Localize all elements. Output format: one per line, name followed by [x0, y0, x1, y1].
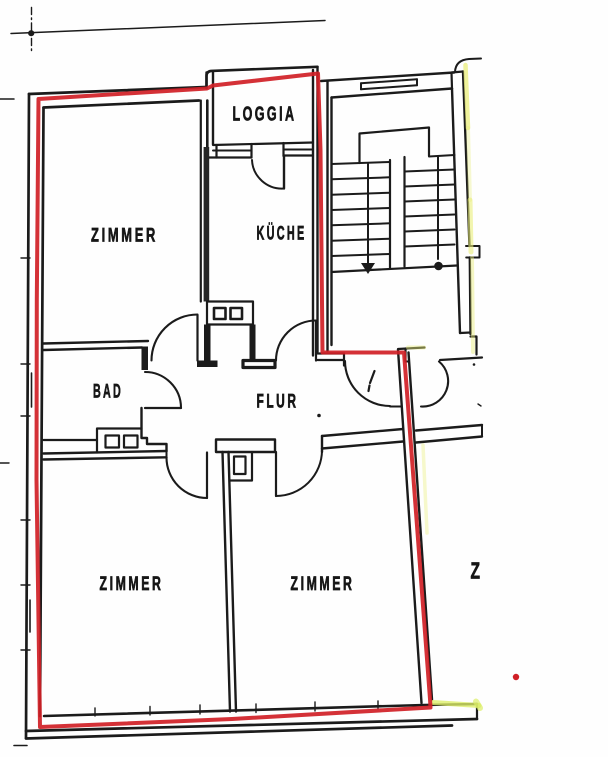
svg-text:ZIMMER: ZIMMER — [91, 226, 158, 247]
svg-text:LOGGIA: LOGGIA — [233, 103, 297, 126]
svg-text:ZIMMER: ZIMMER — [291, 574, 355, 595]
svg-text:Z: Z — [471, 558, 481, 584]
svg-text:BAD: BAD — [93, 382, 123, 403]
svg-text:KÜCHE: KÜCHE — [257, 224, 307, 245]
svg-text:FLUR: FLUR — [257, 392, 299, 413]
svg-text:ZIMMER: ZIMMER — [100, 574, 164, 595]
